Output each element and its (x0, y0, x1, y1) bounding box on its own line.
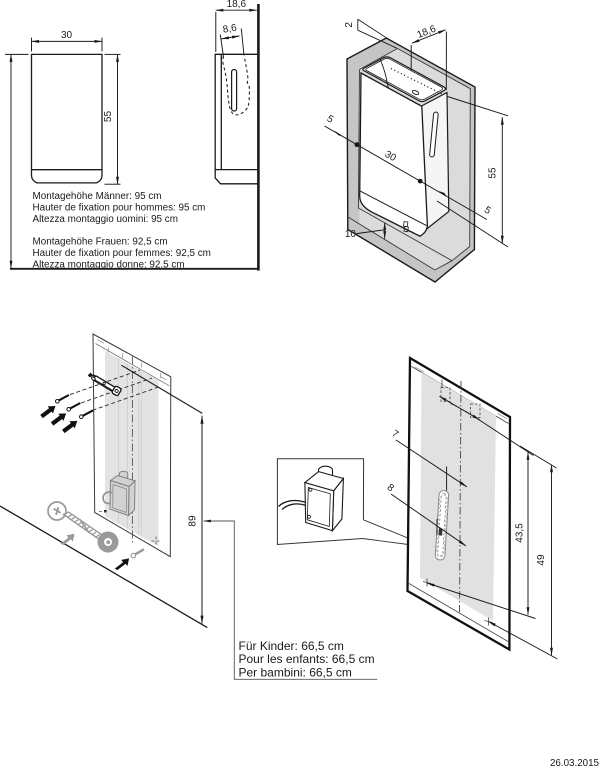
svg-text:18,6: 18,6 (227, 0, 247, 10)
svg-text:2: 2 (344, 22, 355, 28)
svg-text:49: 49 (536, 554, 547, 566)
svg-text:5: 5 (482, 205, 493, 217)
svg-text:Altezza montaggio donne: 92.5: Altezza montaggio donne: 92.5 cm (33, 260, 185, 271)
svg-text:Montagehöhe Frauen: 92,5 cm: Montagehöhe Frauen: 92,5 cm (33, 236, 168, 247)
svg-text:8,6: 8,6 (222, 22, 238, 35)
svg-text:7: 7 (389, 428, 400, 440)
svg-text:18,6: 18,6 (416, 23, 439, 41)
svg-text:5: 5 (325, 113, 336, 126)
svg-text:Per bambini: 66,5 cm: Per bambini: 66,5 cm (239, 666, 352, 680)
svg-text:Hauter de fixation pour femmes: Hauter de fixation pour femmes: 92,5 cm (33, 248, 211, 259)
svg-text:Montagehöhe Männer: 95 cm: Montagehöhe Männer: 95 cm (33, 191, 162, 202)
svg-text:Altezza montaggio uomini: 95 c: Altezza montaggio uomini: 95 cm (33, 214, 178, 225)
svg-text:26.03.2015: 26.03.2015 (550, 758, 600, 767)
svg-text:55: 55 (103, 111, 114, 123)
svg-text:10: 10 (345, 229, 357, 240)
svg-text:Pour les enfants: 66,5 cm: Pour les enfants: 66,5 cm (239, 652, 375, 666)
svg-text:43,5: 43,5 (514, 523, 525, 543)
svg-text:30: 30 (61, 30, 73, 41)
svg-text:Für Kinder: 66,5 cm: Für Kinder: 66,5 cm (239, 639, 344, 653)
svg-text:Hauter de fixation pour hommes: Hauter de fixation pour hommes: 95 cm (33, 202, 206, 213)
svg-text:89: 89 (188, 515, 199, 527)
svg-text:55: 55 (487, 167, 498, 179)
svg-text:8: 8 (385, 482, 396, 494)
